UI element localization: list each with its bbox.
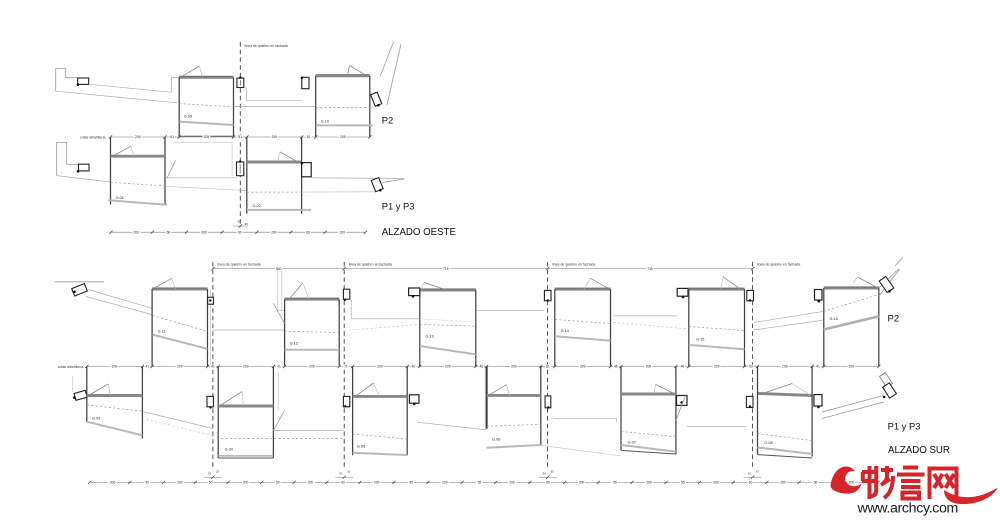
svg-text:P2: P2 — [888, 314, 900, 325]
svg-text:200: 200 — [134, 230, 140, 234]
svg-text:200: 200 — [442, 481, 448, 485]
svg-text:41: 41 — [277, 365, 281, 369]
svg-text:30: 30 — [347, 469, 351, 473]
svg-text:209: 209 — [204, 135, 210, 139]
svg-text:P1 y P3: P1 y P3 — [382, 201, 415, 212]
svg-text:G.10: G.10 — [321, 119, 329, 123]
svg-text:209: 209 — [511, 365, 517, 369]
svg-text:G.15: G.15 — [696, 338, 704, 342]
svg-text:G.04: G.04 — [225, 447, 233, 451]
svg-text:55: 55 — [613, 481, 617, 485]
svg-text:G.07: G.07 — [628, 440, 636, 444]
svg-text:200: 200 — [110, 481, 116, 485]
svg-text:30: 30 — [551, 469, 555, 473]
svg-text:55: 55 — [409, 481, 413, 485]
svg-text:715: 715 — [647, 267, 653, 271]
svg-text:209: 209 — [377, 365, 383, 369]
svg-text:41: 41 — [145, 365, 149, 369]
svg-text:G.05: G.05 — [357, 445, 365, 449]
svg-text:51: 51 — [170, 135, 174, 139]
svg-text:209: 209 — [714, 365, 720, 369]
svg-text:25: 25 — [216, 469, 220, 473]
svg-text:200: 200 — [780, 481, 786, 485]
svg-text:50: 50 — [276, 481, 280, 485]
svg-text:30: 30 — [756, 469, 760, 473]
svg-text:41: 41 — [816, 365, 820, 369]
svg-text:41: 41 — [211, 365, 215, 369]
svg-text:G.03: G.03 — [92, 416, 100, 420]
svg-text:linea de quiebro en fachada: linea de quiebro en fachada — [757, 263, 800, 267]
svg-text:G.11: G.11 — [158, 329, 166, 333]
svg-text:209: 209 — [135, 135, 141, 139]
svg-text:51: 51 — [238, 135, 242, 139]
svg-text:46: 46 — [614, 365, 618, 369]
svg-text:G.02: G.02 — [253, 204, 261, 208]
svg-text:209: 209 — [646, 365, 652, 369]
svg-text:60: 60 — [749, 481, 753, 485]
svg-text:P1 y P3: P1 y P3 — [888, 420, 921, 431]
svg-text:50: 50 — [814, 481, 818, 485]
svg-text:209: 209 — [580, 365, 586, 369]
svg-text:50: 50 — [749, 365, 753, 369]
svg-text:linea de quiebro en fachada: linea de quiebro en fachada — [349, 263, 392, 267]
svg-text:209: 209 — [112, 365, 118, 369]
svg-text:50: 50 — [209, 481, 213, 485]
svg-text:30: 30 — [339, 472, 343, 476]
svg-text:200: 200 — [646, 481, 652, 485]
svg-text:200: 200 — [340, 230, 346, 234]
svg-text:90: 90 — [145, 481, 149, 485]
svg-text:G.09: G.09 — [184, 115, 192, 119]
svg-text:46: 46 — [479, 365, 483, 369]
svg-text:60: 60 — [238, 230, 242, 234]
svg-text:209: 209 — [177, 365, 183, 369]
svg-text:51: 51 — [546, 365, 550, 369]
svg-text:715: 715 — [443, 267, 449, 271]
svg-text:G.13: G.13 — [425, 335, 433, 339]
svg-text:209: 209 — [309, 365, 315, 369]
svg-text:G.01: G.01 — [116, 196, 124, 200]
svg-text:46: 46 — [681, 365, 685, 369]
svg-text:200: 200 — [509, 481, 515, 485]
svg-text:linea de quiebro en fachada: linea de quiebro en fachada — [217, 263, 260, 267]
svg-text:209: 209 — [271, 135, 277, 139]
svg-text:200: 200 — [713, 481, 719, 485]
svg-text:cotas albañilería: cotas albañilería — [80, 136, 106, 140]
svg-text:G.16: G.16 — [830, 317, 838, 321]
svg-text:60: 60 — [341, 481, 345, 485]
svg-text:200: 200 — [243, 481, 249, 485]
svg-text:209: 209 — [849, 365, 855, 369]
svg-text:55: 55 — [478, 481, 482, 485]
svg-text:30: 30 — [748, 472, 752, 476]
svg-text:cotas albañilería: cotas albañilería — [58, 365, 84, 369]
svg-text:www.archcy.com: www.archcy.com — [857, 500, 958, 516]
svg-text:G.08: G.08 — [764, 441, 772, 445]
svg-text:71: 71 — [344, 365, 348, 369]
svg-text:60: 60 — [167, 230, 171, 234]
svg-text:209: 209 — [243, 365, 249, 369]
svg-text:60: 60 — [306, 230, 310, 234]
svg-text:40: 40 — [412, 365, 416, 369]
svg-text:G.14: G.14 — [561, 329, 569, 333]
svg-text:P2: P2 — [382, 116, 394, 127]
svg-text:linea de quiebro en fachada: linea de quiebro en fachada — [245, 44, 288, 48]
svg-text:30: 30 — [245, 222, 249, 226]
svg-text:25: 25 — [208, 472, 212, 476]
svg-text:200: 200 — [374, 481, 380, 485]
svg-text:209: 209 — [445, 365, 451, 369]
svg-text:200: 200 — [271, 230, 277, 234]
svg-text:60: 60 — [546, 481, 550, 485]
svg-text:200: 200 — [308, 481, 314, 485]
svg-text:55: 55 — [681, 481, 685, 485]
svg-text:51: 51 — [307, 135, 311, 139]
svg-text:500: 500 — [276, 267, 282, 271]
svg-text:200: 200 — [177, 481, 183, 485]
svg-text:linea de quiebro en fachada: linea de quiebro en fachada — [552, 263, 595, 267]
svg-text:209: 209 — [782, 365, 788, 369]
svg-text:200: 200 — [202, 230, 208, 234]
svg-text:G.12: G.12 — [290, 341, 298, 345]
svg-text:30: 30 — [237, 220, 241, 224]
svg-text:200: 200 — [579, 481, 585, 485]
svg-text:ALZADO OESTE: ALZADO OESTE — [382, 227, 457, 238]
svg-text:30: 30 — [543, 472, 547, 476]
svg-text:209: 209 — [340, 135, 346, 139]
svg-text:G.06: G.06 — [492, 438, 500, 442]
svg-text:200: 200 — [849, 481, 855, 485]
svg-text:ALZADO SUR: ALZADO SUR — [888, 445, 950, 456]
